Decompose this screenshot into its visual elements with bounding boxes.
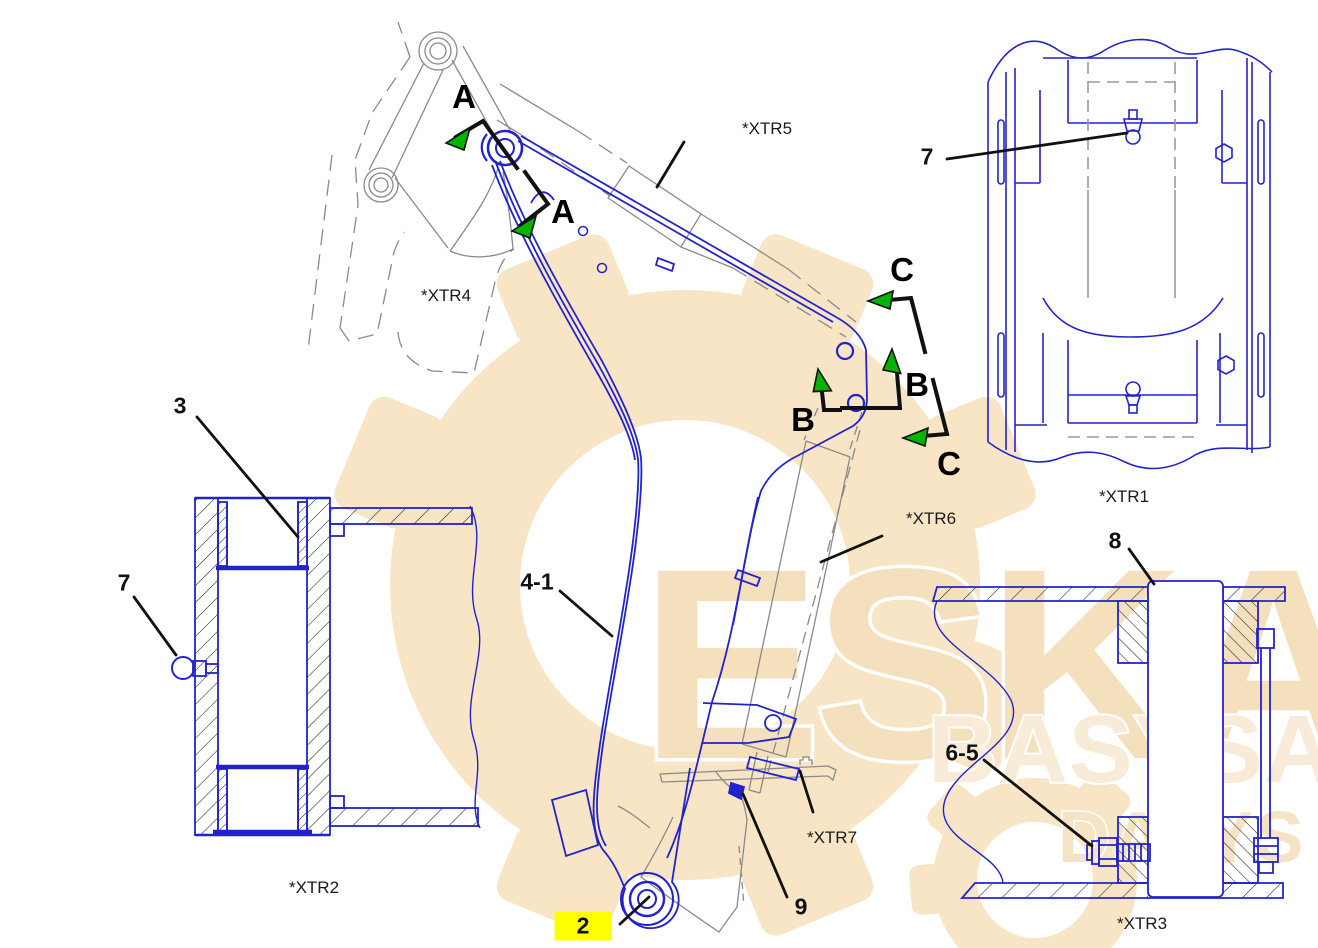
callout-2[interactable]: 2 [555, 912, 612, 941]
ref-xtr3[interactable]: *XTR3 [1117, 914, 1167, 934]
section-letter-c2: C [937, 445, 961, 483]
callout-3[interactable]: 3 [174, 393, 187, 420]
technical-drawing: ESKA BASYSA DALYS [0, 0, 1318, 948]
callout-7-left[interactable]: 7 [118, 570, 131, 597]
ref-xtr5[interactable]: *XTR5 [742, 119, 792, 139]
leader-4-1 [560, 591, 612, 636]
callout-8[interactable]: 8 [1109, 528, 1122, 555]
callout-4-1[interactable]: 4-1 [520, 569, 553, 596]
grease-fitting-bottom [1126, 382, 1140, 413]
section-letter-c1: C [890, 251, 914, 289]
section-view-xtr1 [988, 40, 1272, 469]
callout-7-right[interactable]: 7 [921, 144, 934, 171]
grease-fitting-top [1124, 110, 1142, 144]
watermark-text-secondary: BASYSA [928, 696, 1318, 803]
ref-xtr2[interactable]: *XTR2 [289, 878, 339, 898]
section-letter-b2: B [905, 366, 929, 404]
section-letter-a2: A [551, 193, 575, 231]
ref-xtr6[interactable]: *XTR6 [906, 509, 956, 529]
drawing-canvas: ESKA BASYSA DALYS [0, 0, 1318, 948]
leader-7r [947, 133, 1127, 159]
leader-7l [134, 597, 176, 655]
callout-9[interactable]: 9 [795, 894, 808, 921]
leader-xtr5 [657, 142, 684, 187]
section-letter-a1: A [452, 78, 476, 116]
coupler-xtr4 [308, 22, 514, 373]
section-letter-b1: B [791, 401, 815, 439]
ref-xtr4[interactable]: *XTR4 [421, 286, 471, 306]
ref-xtr1[interactable]: *XTR1 [1099, 487, 1149, 507]
callout-6-5[interactable]: 6-5 [945, 740, 978, 767]
ref-xtr7[interactable]: *XTR7 [807, 828, 857, 848]
